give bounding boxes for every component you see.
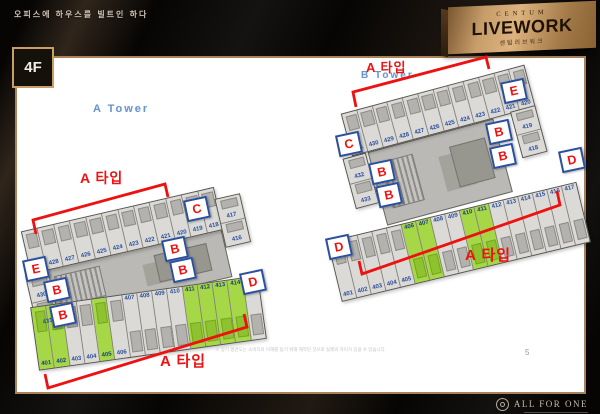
unit-number: 418	[521, 143, 546, 158]
unit-number: 415	[533, 190, 549, 202]
brand-plaque: CENTUM LIVEWORK 센텀리브워크	[448, 1, 596, 54]
unit-number: 411	[182, 285, 197, 295]
plan-b-right-column: 419418	[510, 105, 548, 158]
disclaimer-text: ※ 상기 평면도는 소비자의 이해를 돕기 위해 제작된 것으로 실제와 차이가…	[215, 347, 401, 353]
unit-number: 433	[354, 194, 377, 208]
unit-number: 406	[114, 348, 129, 358]
unit-number: 406	[402, 222, 418, 234]
unit-number: 403	[370, 282, 386, 294]
unit-number: 412	[489, 201, 505, 213]
unit-number: 407	[416, 218, 432, 230]
unit-number: 408	[431, 215, 447, 227]
page-number: 5	[525, 348, 529, 357]
unit-cell-416: 416	[221, 218, 250, 246]
unit-number: 402	[355, 286, 371, 298]
unit-number: 412	[198, 283, 213, 293]
type-label-b-top: A 타입	[366, 57, 406, 76]
unit-number: 401	[39, 359, 54, 369]
footer-logo: ALL FOR ONE	[496, 398, 588, 411]
unit-cell-418: 418	[517, 129, 546, 157]
unit-number: 403	[69, 355, 84, 365]
floor-label: 4F	[12, 47, 54, 88]
unit-number: 422	[488, 106, 504, 118]
unit-number: 416	[547, 187, 563, 199]
unit-number: 410	[460, 208, 476, 220]
unit-number: 409	[445, 211, 461, 223]
unit-number: 409	[152, 289, 167, 299]
unit-number: 413	[213, 281, 228, 291]
unit-number: 405	[99, 351, 114, 361]
unit-number: 414	[518, 194, 534, 206]
unit-number: 405	[399, 275, 415, 287]
type-label-b-bottom: A 타입	[465, 244, 511, 265]
footer-emblem-icon	[496, 398, 509, 411]
type-label-a-top: A 타입	[80, 168, 123, 188]
unit-number: 407	[122, 293, 137, 303]
unit-number: 413	[504, 197, 520, 209]
unit-number: 416	[225, 233, 250, 247]
footer-subtext-line	[524, 412, 588, 413]
brand-main-text: LIVEWORK	[472, 15, 573, 37]
unit-number: 410	[167, 287, 182, 297]
unit-number: 402	[54, 357, 69, 367]
footer-brand: ALL FOR ONE	[514, 400, 588, 409]
unit-number: 411	[474, 204, 490, 216]
unit-number: 401	[341, 289, 357, 301]
tower-label-a: A Tower	[93, 103, 149, 115]
unit-number: 404	[384, 279, 400, 291]
unit-number: 417	[562, 183, 578, 195]
brand-sub-text: 센텀리브워크	[499, 36, 544, 47]
slide-slogan: 오피스에 하우스를 빌트인 하다	[14, 9, 148, 20]
unit-number: 408	[137, 291, 152, 301]
type-label-a-bottom: A 타입	[160, 350, 206, 371]
unit-number: 404	[84, 353, 99, 363]
